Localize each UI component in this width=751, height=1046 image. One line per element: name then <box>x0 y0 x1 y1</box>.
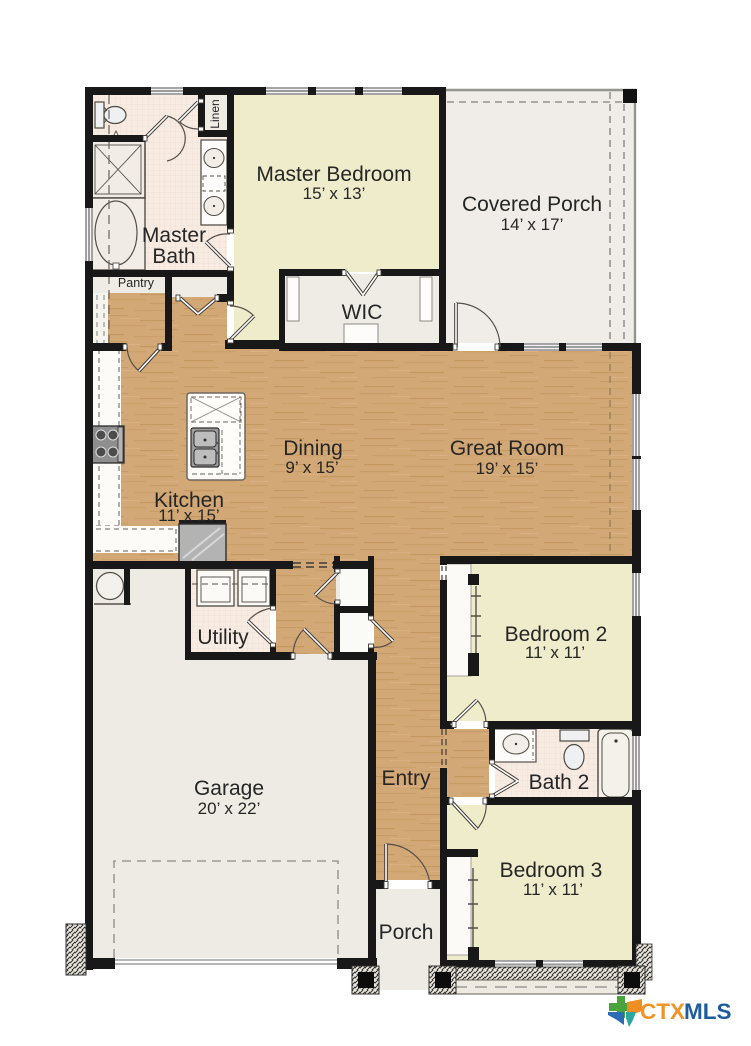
svg-text:MLS: MLS <box>684 999 732 1024</box>
svg-text:11’ x 15’: 11’ x 15’ <box>158 506 219 525</box>
svg-text:Garage: Garage <box>194 777 264 800</box>
svg-text:Dining: Dining <box>283 437 343 460</box>
svg-text:Master Bedroom: Master Bedroom <box>256 163 411 186</box>
svg-text:Covered Porch: Covered Porch <box>462 193 602 216</box>
svg-text:WIC: WIC <box>342 301 383 324</box>
svg-text:Pantry: Pantry <box>118 276 155 290</box>
svg-text:Porch: Porch <box>379 921 434 944</box>
svg-text:Master: Master <box>142 224 206 247</box>
svg-text:Entry: Entry <box>381 767 431 790</box>
svg-text:9’ x 15’: 9’ x 15’ <box>285 458 338 477</box>
svg-text:20’ x 22’: 20’ x 22’ <box>198 799 261 818</box>
svg-text:15’ x 13’: 15’ x 13’ <box>303 184 366 203</box>
svg-text:Great Room: Great Room <box>450 437 564 460</box>
svg-text:19’ x 15’: 19’ x 15’ <box>476 459 539 478</box>
svg-text:Bath: Bath <box>152 245 195 268</box>
svg-text:11’ x 11’: 11’ x 11’ <box>525 643 585 662</box>
svg-text:Bath 2: Bath 2 <box>529 771 590 794</box>
svg-text:14’ x 17’: 14’ x 17’ <box>501 215 564 234</box>
svg-text:Utility: Utility <box>197 626 249 649</box>
svg-text:11’ x 11’: 11’ x 11’ <box>523 880 583 899</box>
svg-text:Linen: Linen <box>208 99 222 128</box>
svg-text:CTX: CTX <box>640 999 685 1024</box>
svg-text:Bedroom 3: Bedroom 3 <box>500 859 603 882</box>
